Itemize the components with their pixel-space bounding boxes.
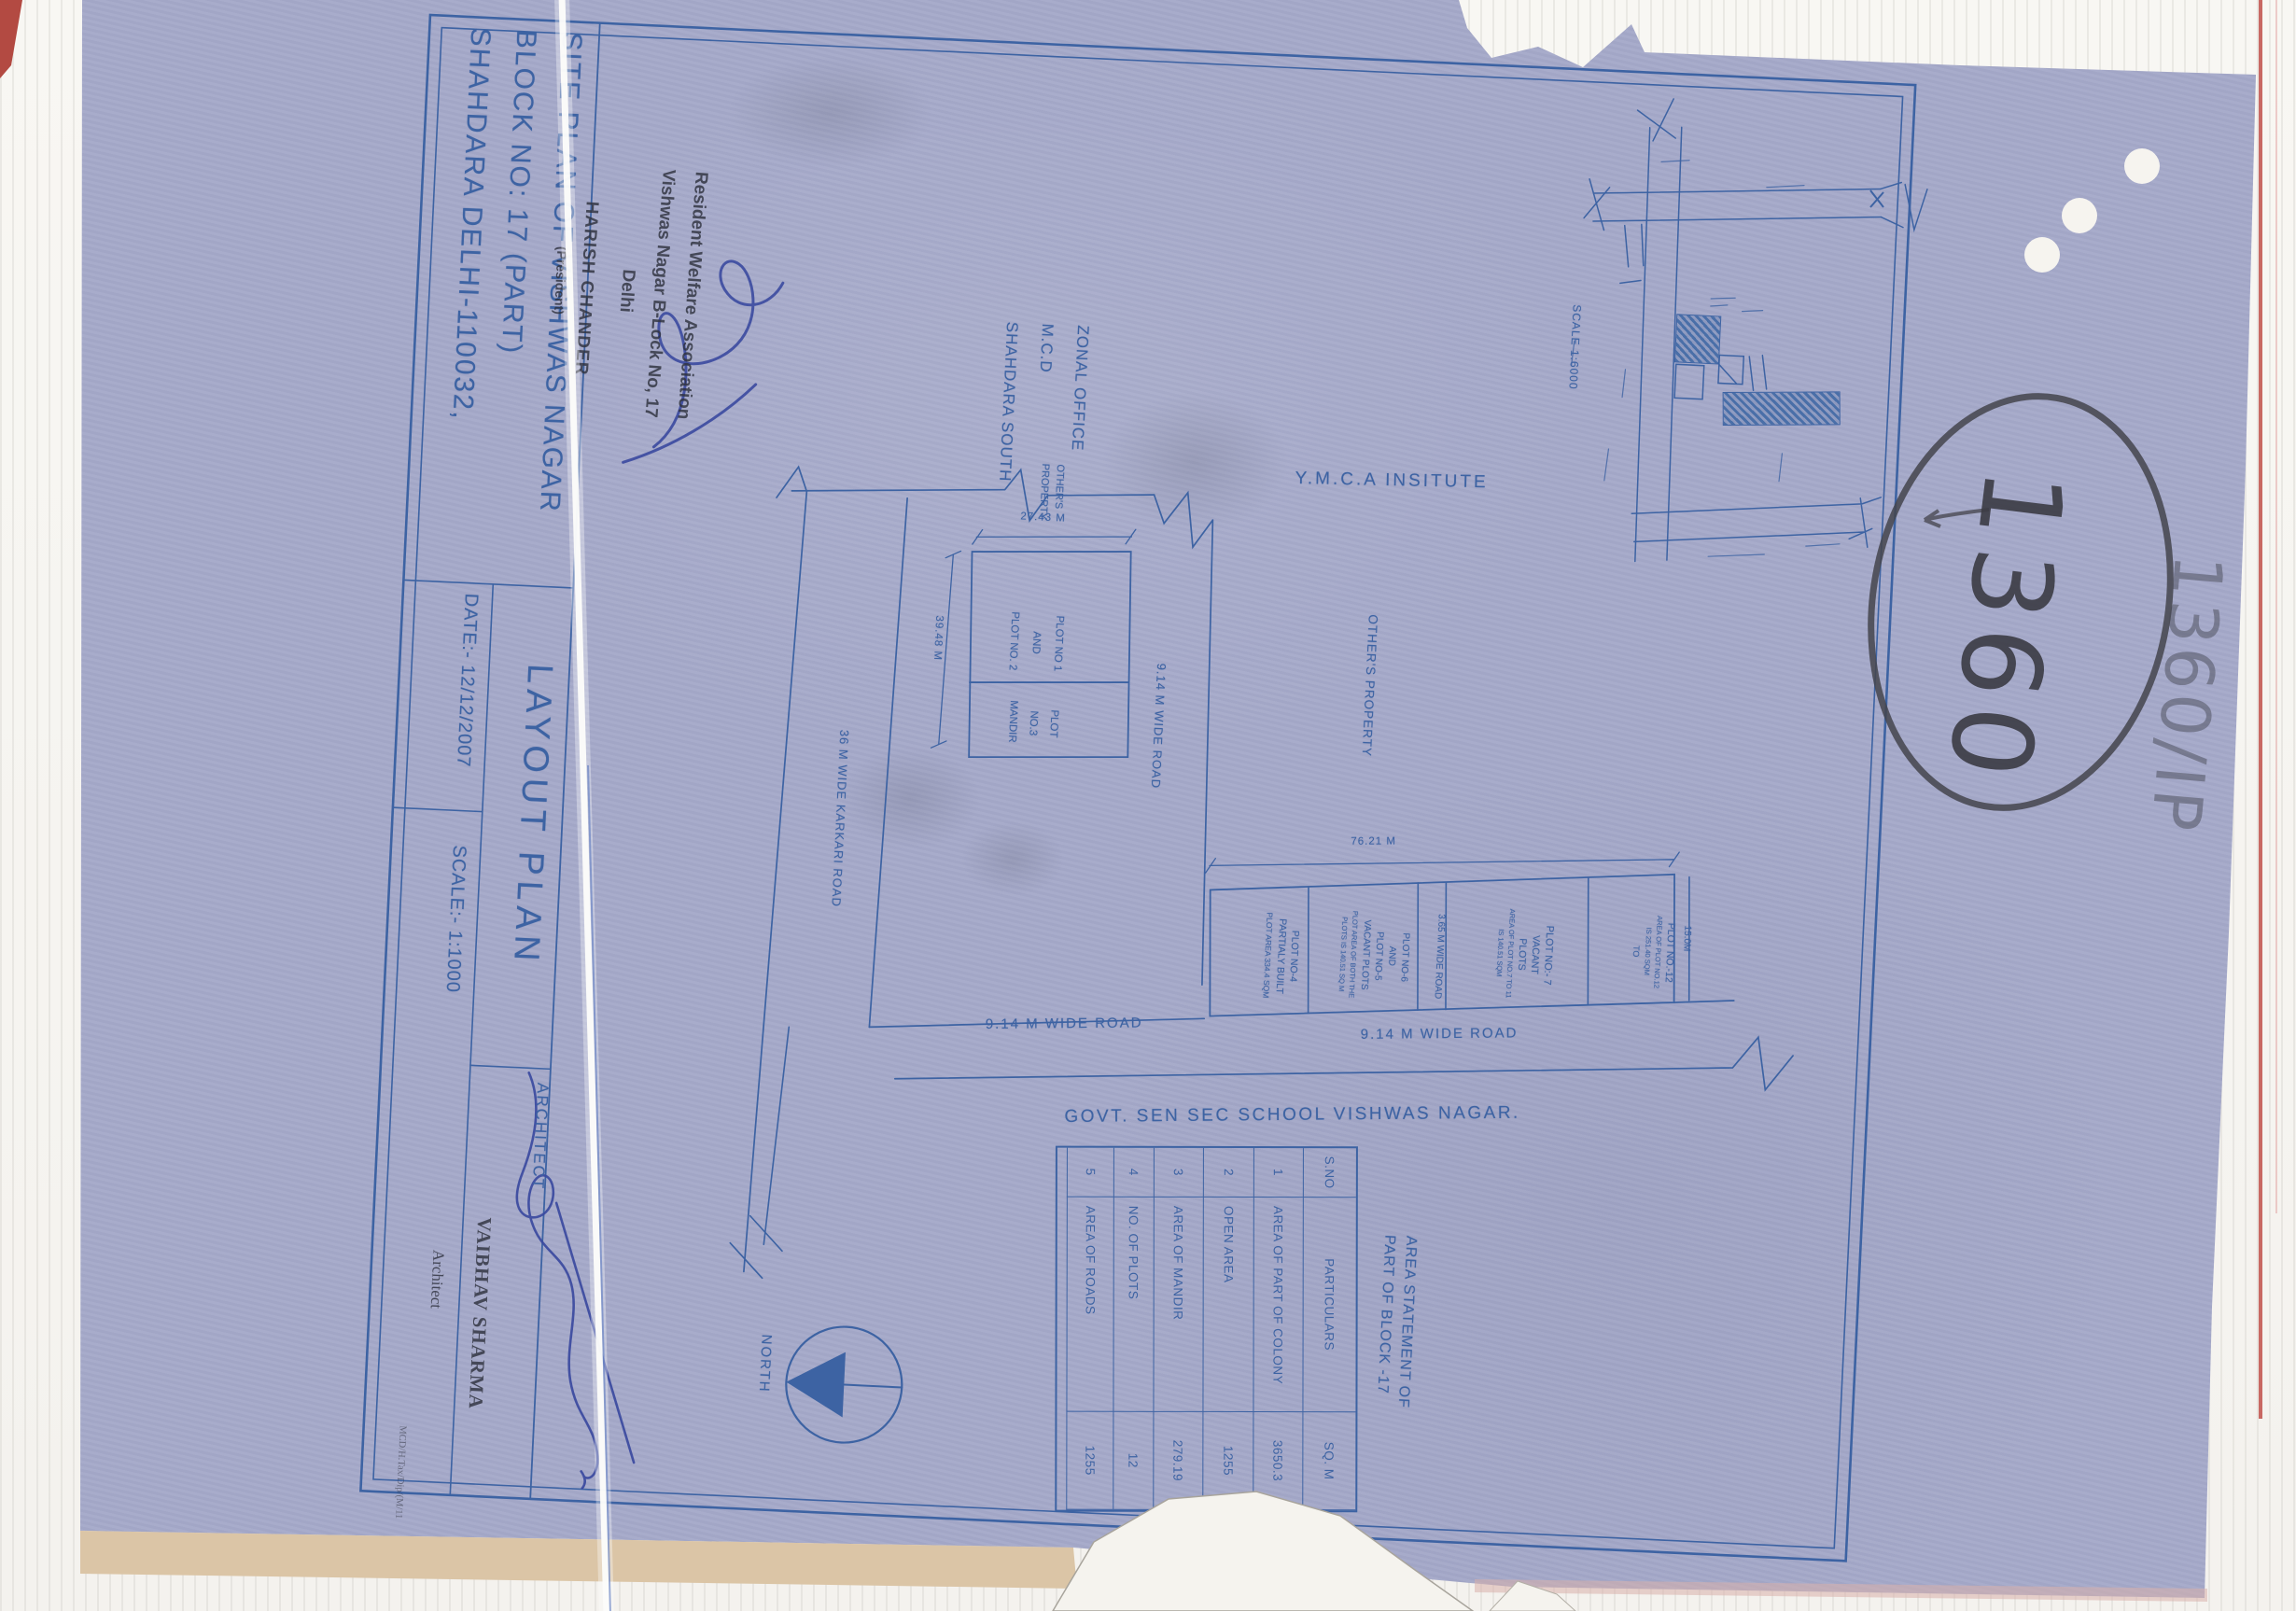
scanned-site-plan-sheet: SITE PLAN OF VISHWAS NAGAR BLOCK NO: 17 … — [0, 0, 2296, 1611]
